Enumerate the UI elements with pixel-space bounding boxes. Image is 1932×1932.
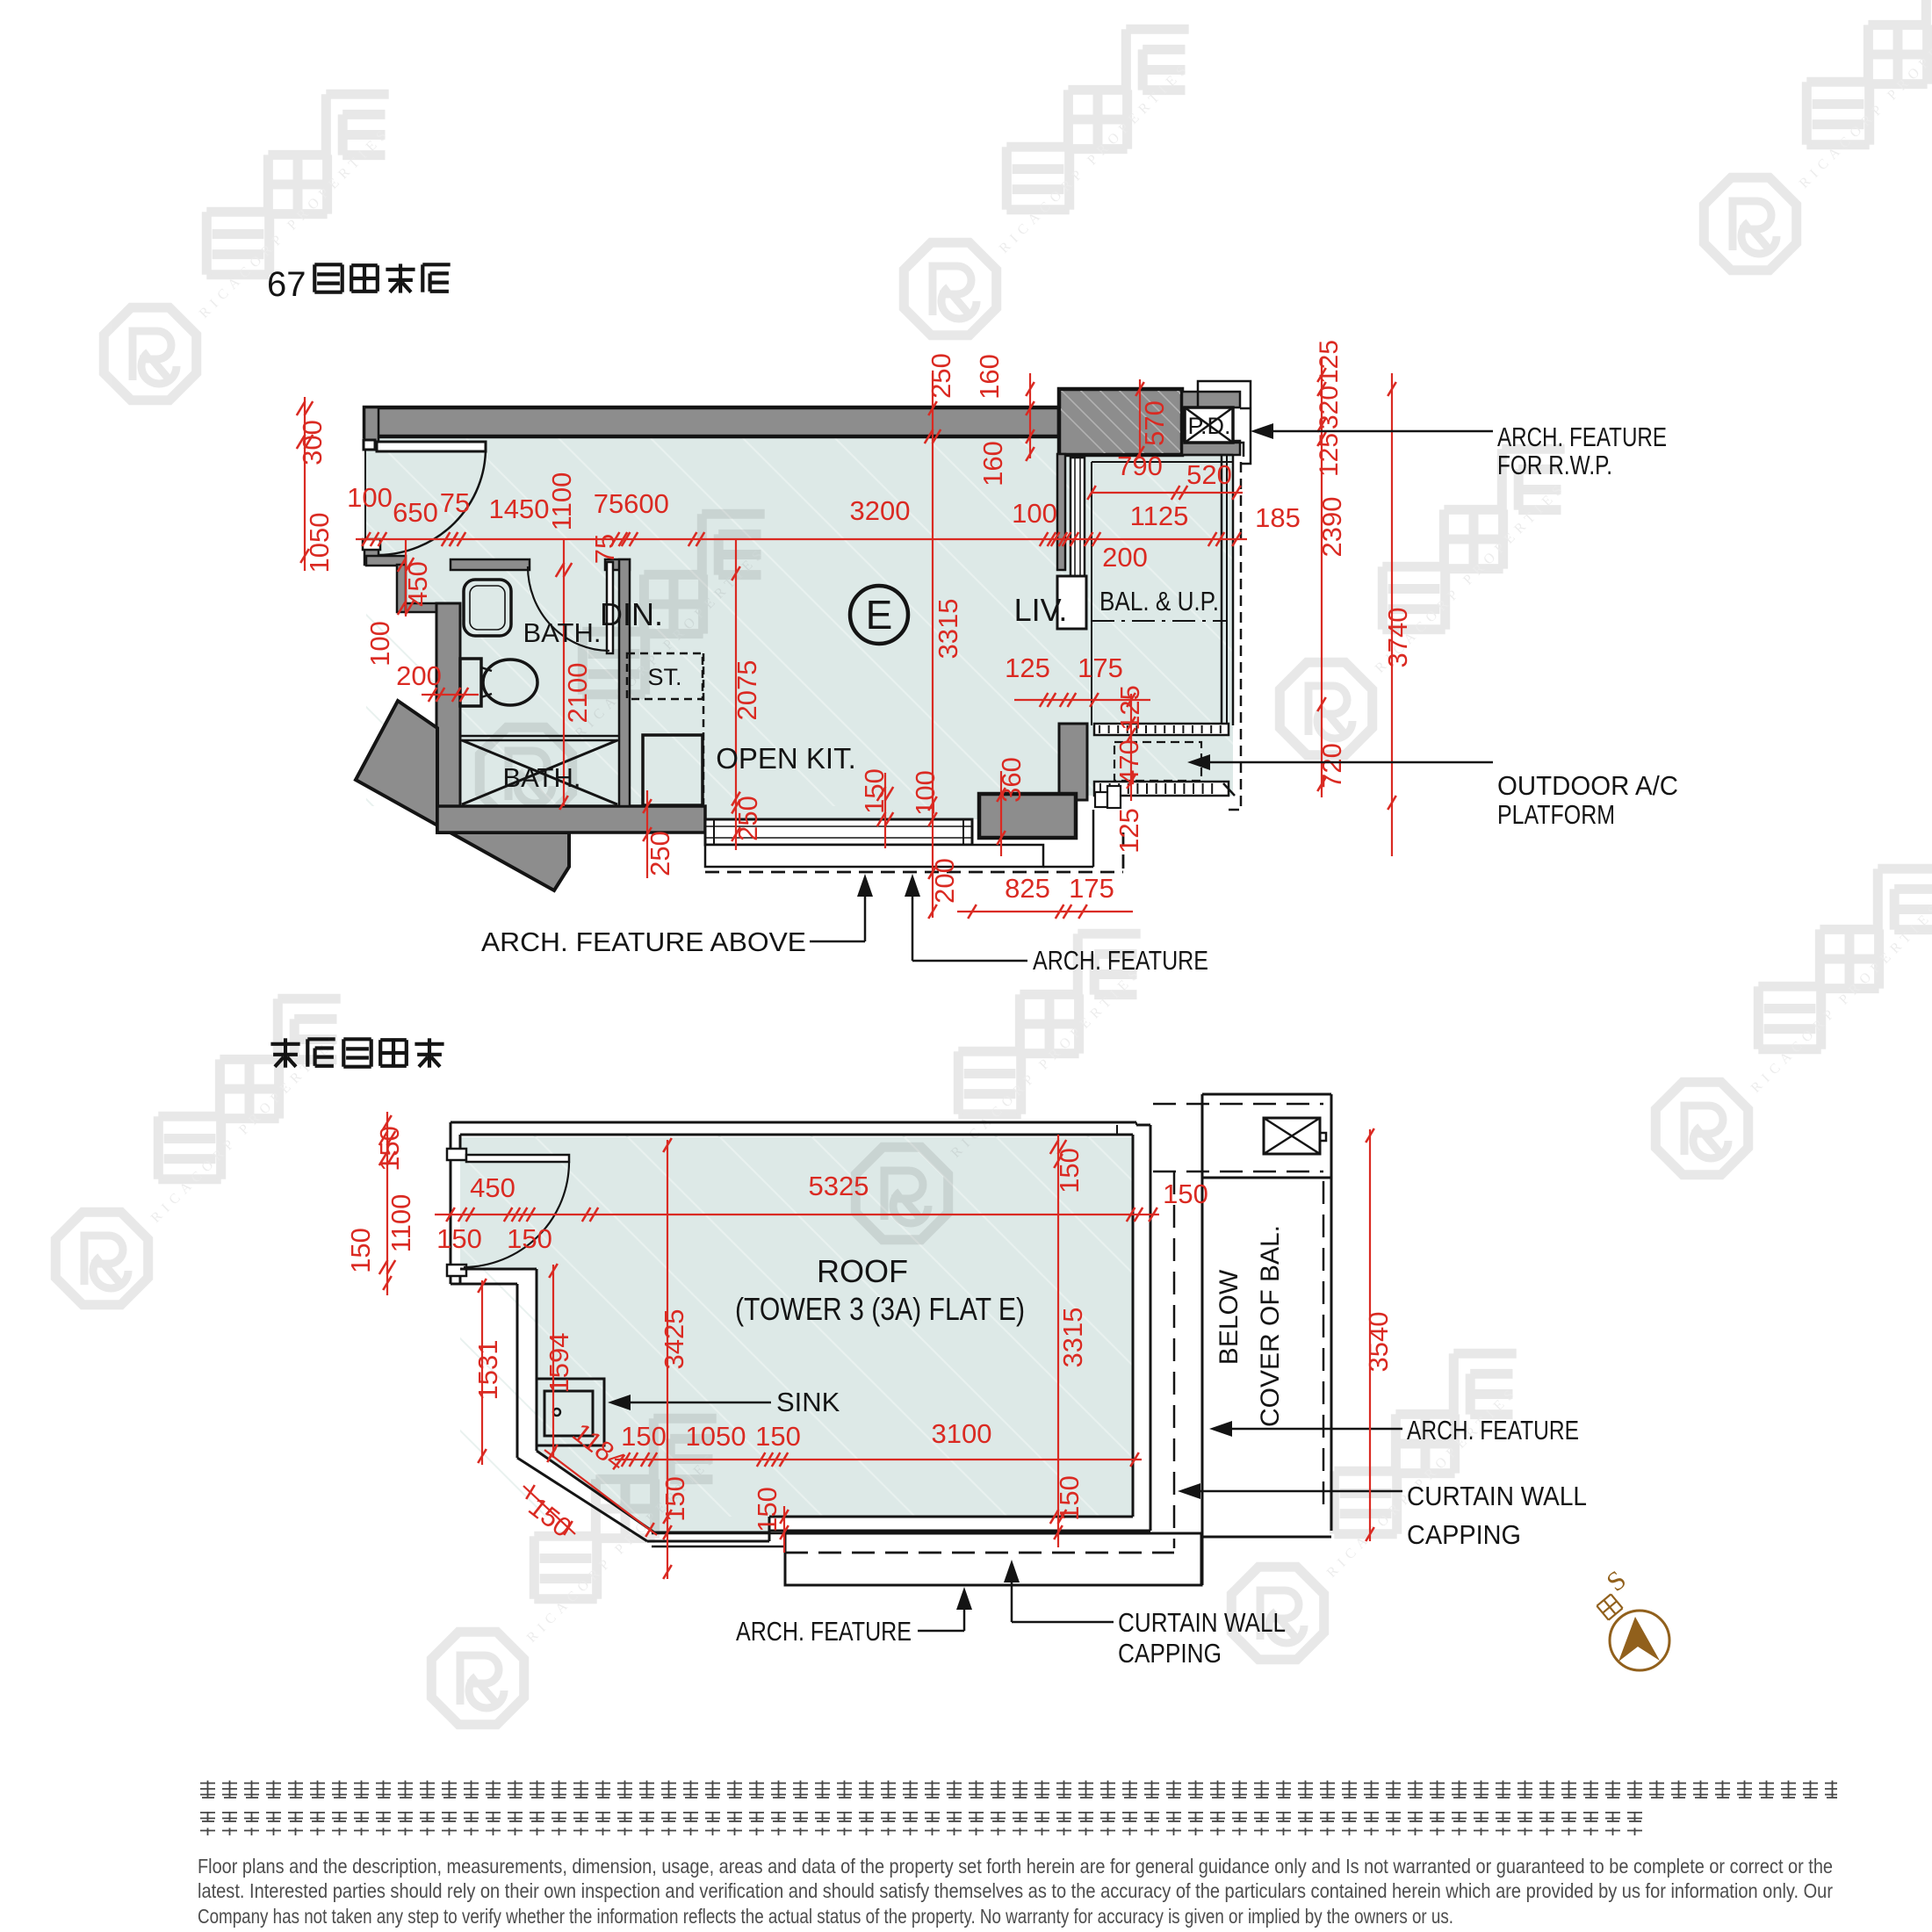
svg-text:160: 160 <box>977 441 1008 487</box>
svg-text:100: 100 <box>910 770 941 816</box>
svg-text:200: 200 <box>396 660 442 691</box>
svg-text:250: 250 <box>926 353 956 399</box>
svg-text:ARCH. FEATURE ABOVE: ARCH. FEATURE ABOVE <box>481 926 806 957</box>
svg-text:250: 250 <box>732 796 763 841</box>
svg-text:150: 150 <box>507 1223 552 1254</box>
svg-text:300: 300 <box>297 420 328 465</box>
svg-text:100: 100 <box>364 621 395 667</box>
svg-text:CAPPING: CAPPING <box>1407 1519 1521 1550</box>
svg-text:ARCH. FEATURE: ARCH. FEATURE <box>1407 1415 1579 1445</box>
svg-text:320: 320 <box>1315 386 1344 429</box>
svg-text:825: 825 <box>1005 873 1050 904</box>
svg-text:185: 185 <box>1255 502 1301 533</box>
svg-text:150: 150 <box>1163 1179 1208 1209</box>
svg-text:P.D.: P.D. <box>1187 413 1230 439</box>
svg-text:150: 150 <box>660 1476 690 1522</box>
svg-text:OUTDOOR A/C: OUTDOOR A/C <box>1497 770 1678 801</box>
svg-text:150: 150 <box>345 1228 376 1273</box>
svg-text:LIV.: LIV. <box>1014 592 1068 628</box>
svg-text:1050: 1050 <box>304 513 335 573</box>
svg-text:ARCH. FEATURE: ARCH. FEATURE <box>1033 945 1208 976</box>
svg-text:3100: 3100 <box>932 1418 992 1449</box>
svg-text:Company has not taken any step: Company has not taken any step to verify… <box>198 1905 1453 1928</box>
svg-text:150: 150 <box>621 1421 667 1452</box>
svg-text:450: 450 <box>402 561 433 607</box>
svg-text:175: 175 <box>1078 652 1123 683</box>
svg-text:CAPPING: CAPPING <box>1118 1638 1222 1669</box>
svg-text:SINK: SINK <box>776 1387 840 1417</box>
svg-text:BAL. & U.P.: BAL. & U.P. <box>1099 586 1219 616</box>
svg-text:5325: 5325 <box>809 1171 869 1201</box>
svg-text:3425: 3425 <box>659 1309 689 1370</box>
svg-text:2100: 2100 <box>562 663 593 724</box>
svg-text:720: 720 <box>1316 743 1347 789</box>
svg-text:ST.: ST. <box>647 664 681 690</box>
svg-text:OPEN KIT.: OPEN KIT. <box>716 742 856 775</box>
svg-text:1050: 1050 <box>686 1421 746 1452</box>
svg-text:2075: 2075 <box>732 660 762 721</box>
svg-text:150: 150 <box>752 1487 782 1532</box>
svg-text:E: E <box>866 592 893 638</box>
svg-text:160: 160 <box>974 354 1005 400</box>
svg-text:470: 470 <box>1114 739 1144 785</box>
svg-text:200: 200 <box>929 858 960 904</box>
svg-text:100: 100 <box>1012 498 1057 529</box>
svg-text:150: 150 <box>859 768 890 814</box>
svg-text:570: 570 <box>1139 400 1170 446</box>
svg-text:COVER OF BAL.: COVER OF BAL. <box>1256 1225 1285 1427</box>
svg-text:450: 450 <box>470 1172 515 1203</box>
svg-text:3200: 3200 <box>850 495 911 526</box>
svg-text:360: 360 <box>996 757 1027 803</box>
svg-text:75: 75 <box>594 488 624 519</box>
svg-text:150: 150 <box>1054 1475 1085 1521</box>
svg-text:520: 520 <box>1186 459 1232 490</box>
svg-text:BELOW: BELOW <box>1215 1269 1244 1365</box>
svg-text:1100: 1100 <box>546 472 577 531</box>
svg-text:DIN.: DIN. <box>600 596 663 632</box>
svg-text:CURTAIN WALL: CURTAIN WALL <box>1118 1607 1286 1638</box>
svg-text:1125: 1125 <box>1130 501 1189 531</box>
svg-text:Floor plans and the descriptio: Floor plans and the description, measure… <box>198 1855 1833 1878</box>
svg-text:125: 125 <box>1005 652 1050 683</box>
svg-text:125: 125 <box>1114 685 1145 731</box>
svg-text:2390: 2390 <box>1316 497 1347 558</box>
svg-text:ARCH. FEATURE: ARCH. FEATURE <box>736 1616 912 1647</box>
svg-text:(TOWER 3 (3A) FLAT E): (TOWER 3 (3A) FLAT E) <box>735 1291 1025 1327</box>
svg-text:1531: 1531 <box>472 1340 503 1401</box>
svg-text:200: 200 <box>1102 542 1148 573</box>
svg-text:ROOF: ROOF <box>817 1253 908 1289</box>
svg-text:PLATFORM: PLATFORM <box>1497 799 1615 830</box>
svg-text:650: 650 <box>393 497 438 528</box>
svg-text:1594: 1594 <box>544 1333 574 1394</box>
svg-text:150: 150 <box>1054 1148 1085 1193</box>
svg-text:3540: 3540 <box>1363 1312 1394 1373</box>
svg-text:1100: 1100 <box>386 1194 416 1253</box>
svg-text:100: 100 <box>347 482 393 513</box>
svg-text:1450: 1450 <box>489 494 550 524</box>
svg-text:150: 150 <box>755 1421 801 1452</box>
svg-text:75: 75 <box>440 487 470 518</box>
svg-text:3740: 3740 <box>1382 608 1413 668</box>
svg-text:175: 175 <box>1069 873 1114 904</box>
svg-text:75: 75 <box>589 534 620 564</box>
svg-text:125: 125 <box>1114 808 1144 854</box>
svg-text:BATH.: BATH. <box>523 617 602 648</box>
svg-text:BATH.: BATH. <box>503 762 581 793</box>
svg-text:ARCH. FEATURE: ARCH. FEATURE <box>1497 422 1667 452</box>
svg-text:latest. Interested parties sho: latest. Interested parties should rely o… <box>198 1879 1833 1902</box>
svg-text:125: 125 <box>1315 340 1344 384</box>
svg-text:600: 600 <box>624 488 669 519</box>
svg-text:250: 250 <box>645 831 675 876</box>
svg-text:125: 125 <box>1315 433 1344 477</box>
svg-text:150: 150 <box>436 1223 482 1254</box>
svg-text:FOR R.W.P.: FOR R.W.P. <box>1497 450 1612 480</box>
svg-text:3315: 3315 <box>933 599 963 660</box>
svg-text:CURTAIN WALL: CURTAIN WALL <box>1407 1481 1587 1511</box>
svg-text:150: 150 <box>374 1126 405 1171</box>
svg-text:3315: 3315 <box>1057 1308 1088 1368</box>
